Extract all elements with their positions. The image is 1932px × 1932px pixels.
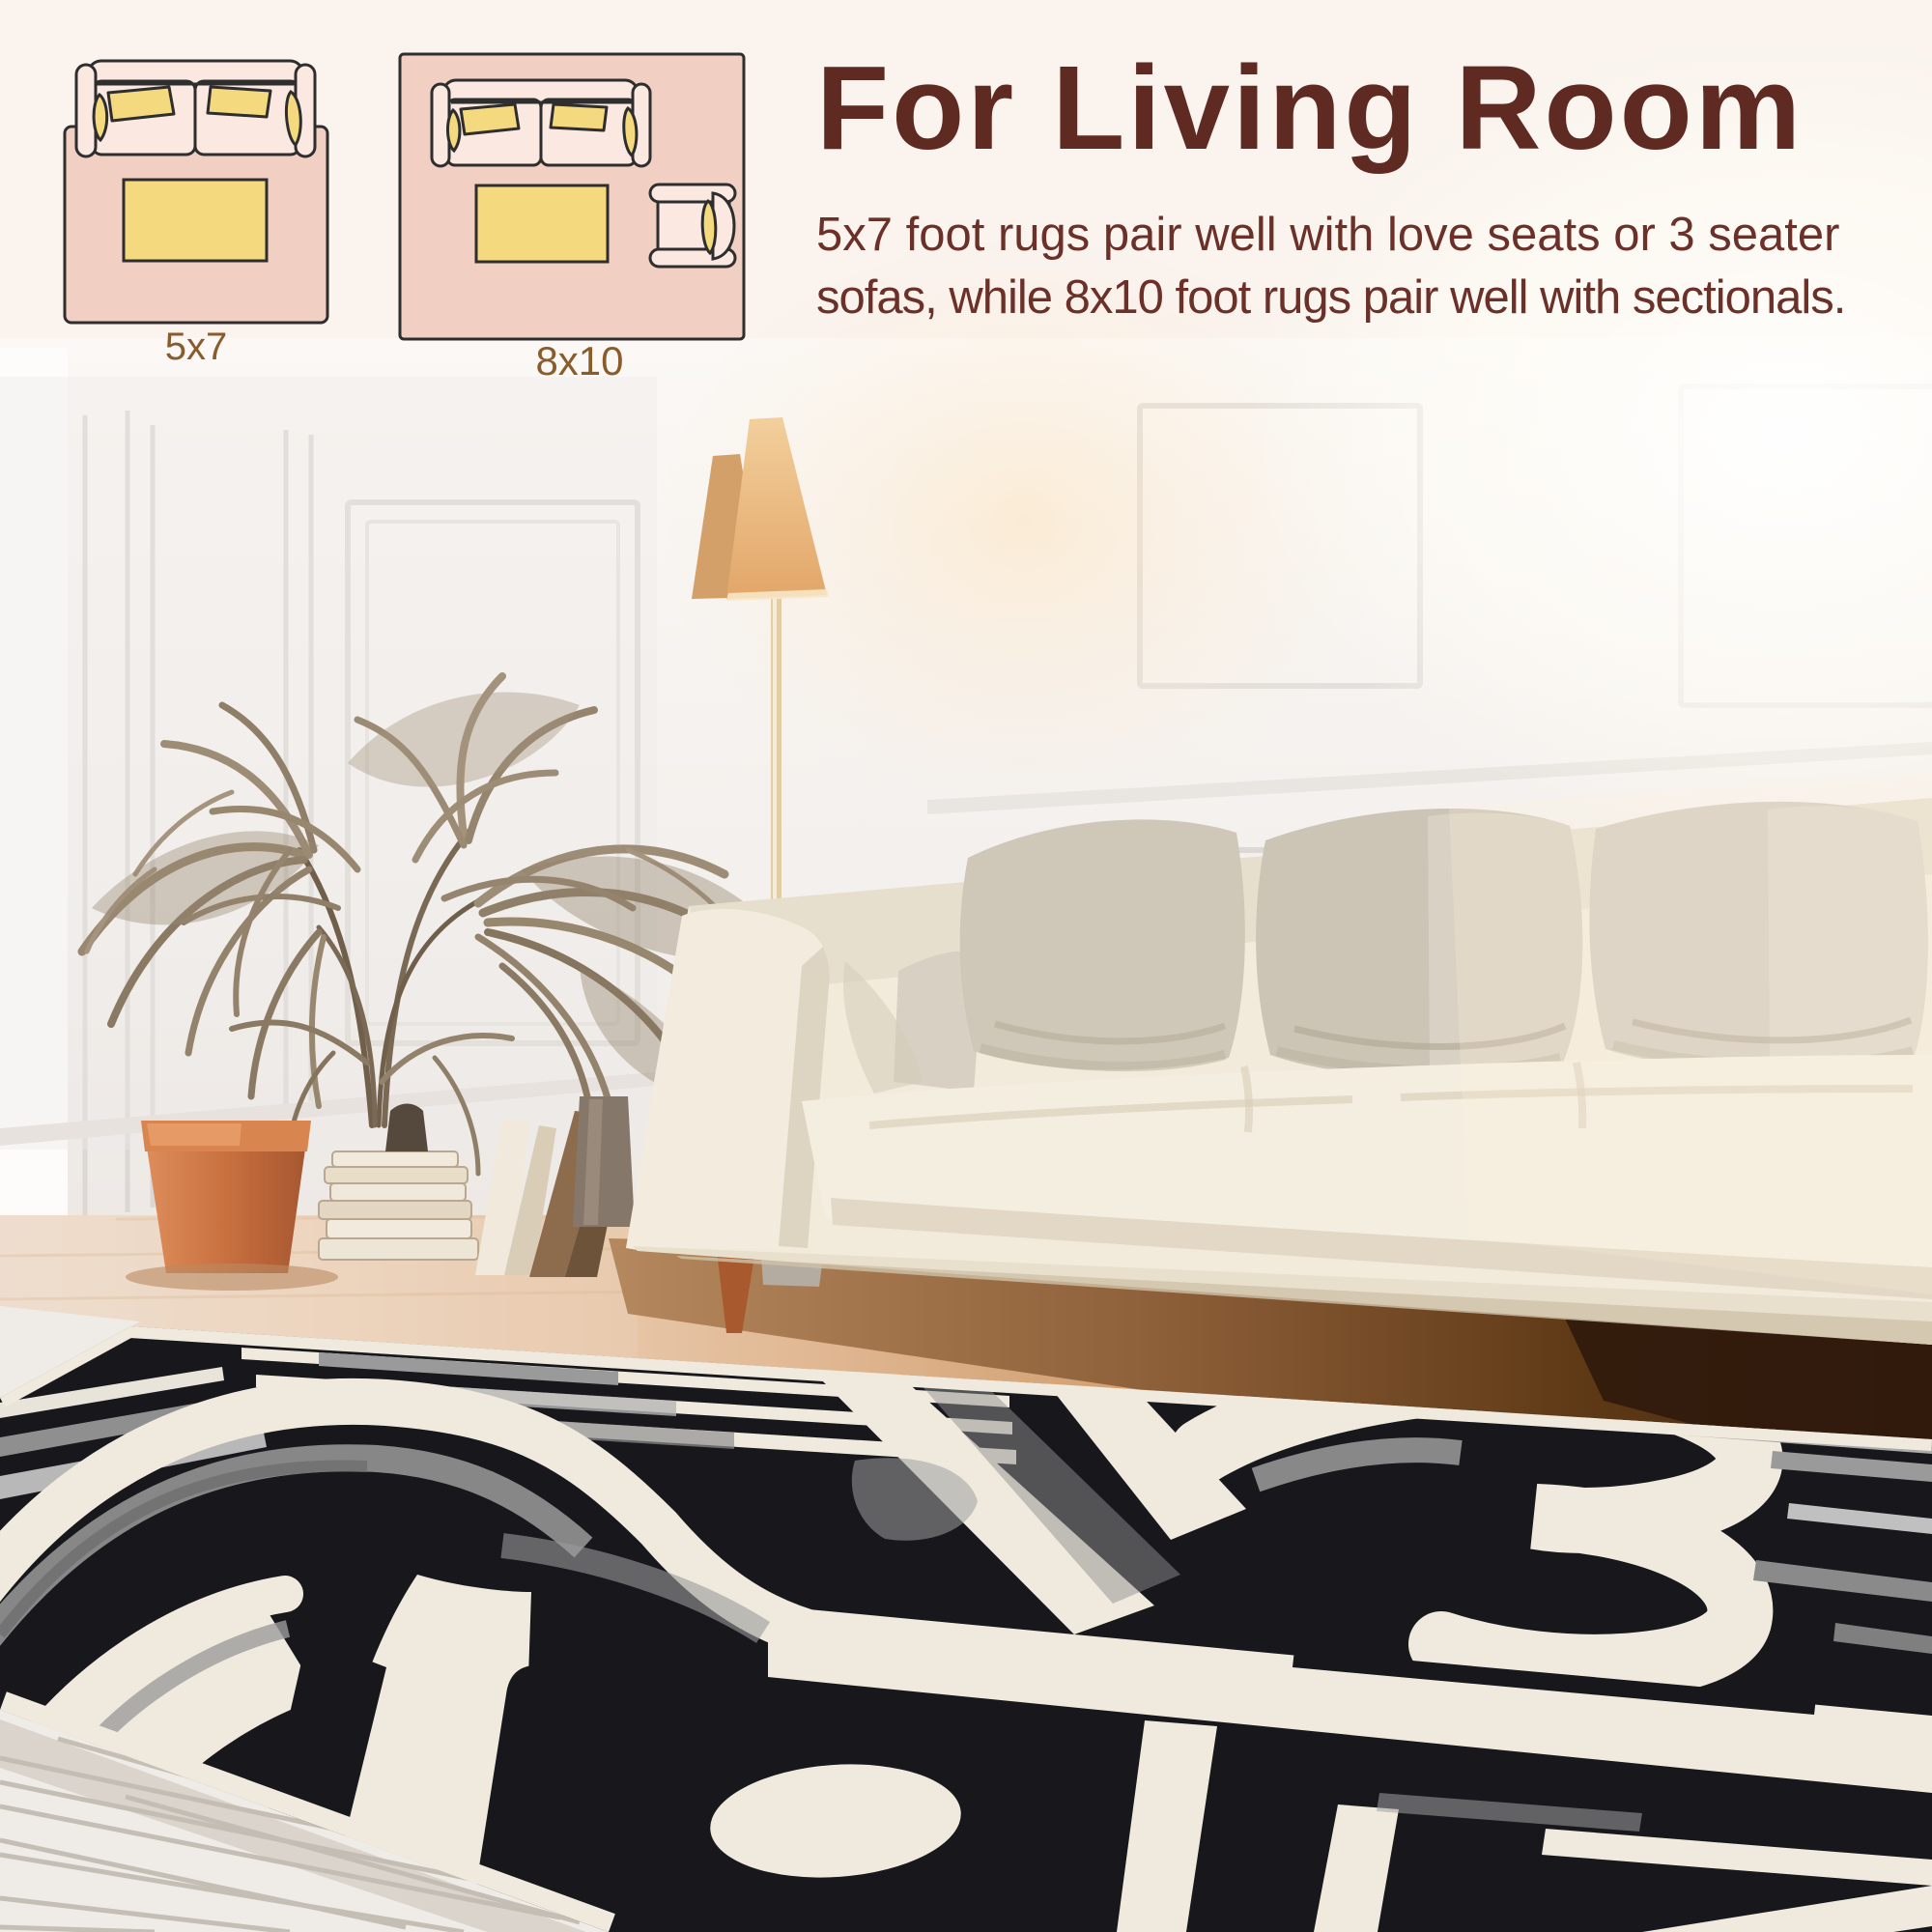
svg-text:5x7 foot rugs pair well with l: 5x7 foot rugs pair well with love seats …	[816, 209, 1839, 261]
svg-text:sofas, while 8x10 foot rugs pa: sofas, while 8x10 foot rugs pair well wi…	[816, 271, 1845, 324]
svg-text:5x7: 5x7	[165, 326, 228, 368]
svg-text:8x10: 8x10	[535, 338, 623, 384]
svg-text:For Living Room: For Living Room	[816, 43, 1804, 175]
